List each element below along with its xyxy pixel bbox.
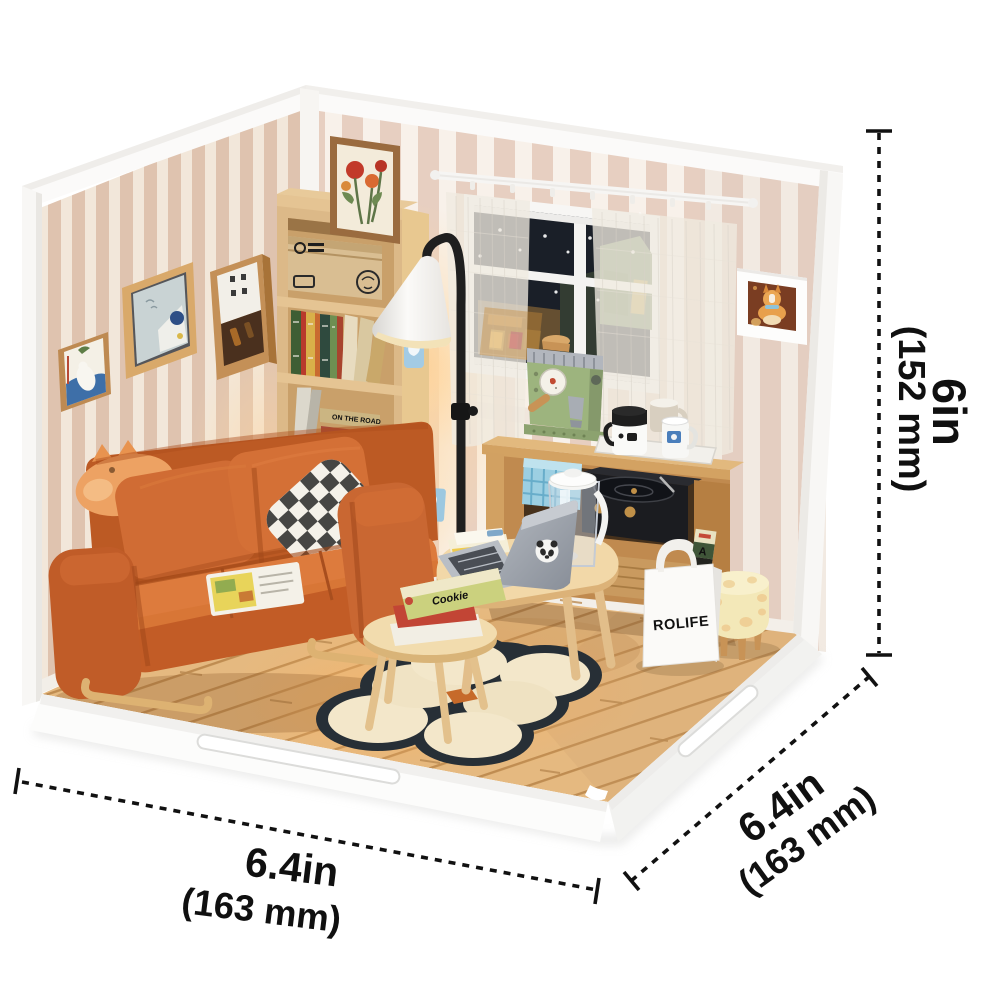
svg-text:(152 mm): (152 mm) (890, 326, 932, 493)
svg-text:A: A (698, 545, 708, 558)
